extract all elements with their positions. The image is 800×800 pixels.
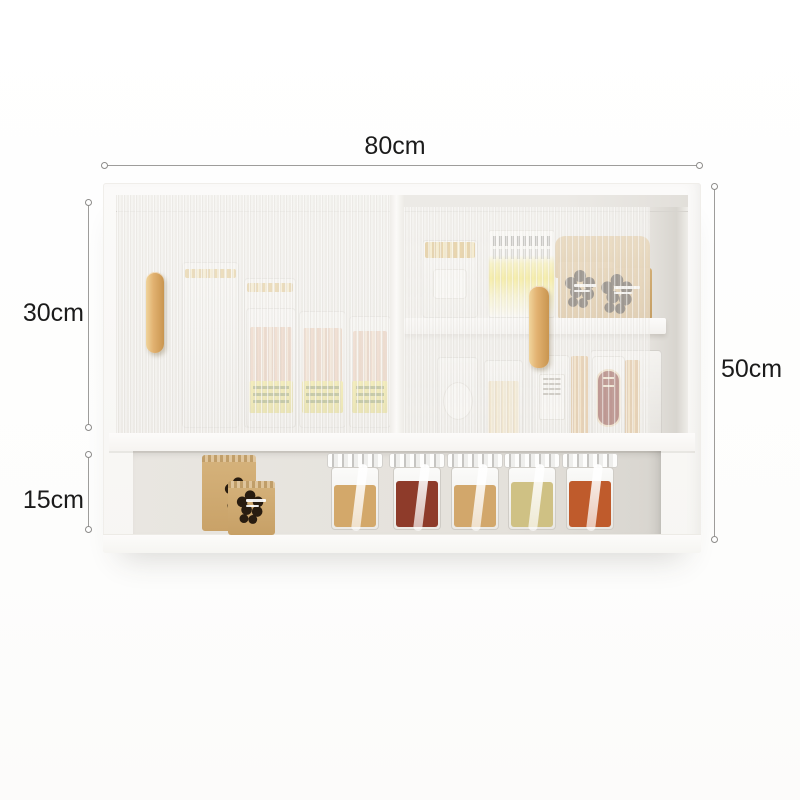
spice-jar-lid [447, 453, 503, 468]
door-divider-stile [390, 195, 404, 433]
spice-jar [563, 453, 617, 530]
bag-crimp [202, 455, 256, 462]
dimension-endpoint-circle [85, 526, 92, 533]
dimension-endpoint-circle [85, 424, 92, 431]
product-dimension-image: 80cm 30cm 15cm 50cm [0, 0, 800, 800]
spice-jar-lid [327, 453, 383, 468]
lower-section-dimension-label: 15cm [20, 486, 84, 515]
dimension-endpoint-circle [711, 536, 718, 543]
spice-jar-body [393, 467, 441, 530]
left-door-wood-handle [146, 272, 164, 353]
dimension-endpoint-circle [101, 162, 108, 169]
upper-section-dimension-label: 30cm [20, 299, 84, 328]
spice-jar-lid [389, 453, 445, 468]
bag-crimp [228, 481, 275, 488]
total-height-dimension-line [714, 187, 715, 539]
spice-jar [328, 453, 382, 530]
dimension-endpoint-circle [711, 183, 718, 190]
upper-section-dimension-line [88, 203, 89, 427]
dimension-endpoint-circle [85, 451, 92, 458]
width-dimension-label: 80cm [330, 132, 460, 161]
cabinet [103, 183, 701, 553]
upper-glass-compartment [116, 195, 688, 433]
grape-logo [236, 490, 266, 526]
dimension-endpoint-circle [696, 162, 703, 169]
lower-section-dimension-line [88, 455, 89, 529]
dimension-endpoint-circle [85, 199, 92, 206]
spice-jar [448, 453, 502, 530]
spice-jar [505, 453, 559, 530]
fluted-glass-door-right [404, 207, 650, 433]
spice-jar [390, 453, 444, 530]
spice-jar-body [331, 467, 379, 530]
spice-jar-body [451, 467, 499, 530]
spice-jar-lid [504, 453, 560, 468]
divider-shelf-board [109, 433, 695, 451]
total-height-dimension-label: 50cm [721, 355, 791, 384]
bag-text [246, 505, 259, 507]
right-shelf-compartment [404, 207, 688, 433]
cabinet-bottom-board [103, 534, 701, 553]
spice-jar-lid [562, 453, 618, 468]
spice-jar-body [508, 467, 556, 530]
bag-text [246, 499, 266, 502]
right-door-wood-handle [529, 286, 549, 368]
spice-jar-body [566, 467, 614, 530]
width-dimension-line [105, 165, 700, 166]
kraft-spice-bag [228, 481, 275, 535]
